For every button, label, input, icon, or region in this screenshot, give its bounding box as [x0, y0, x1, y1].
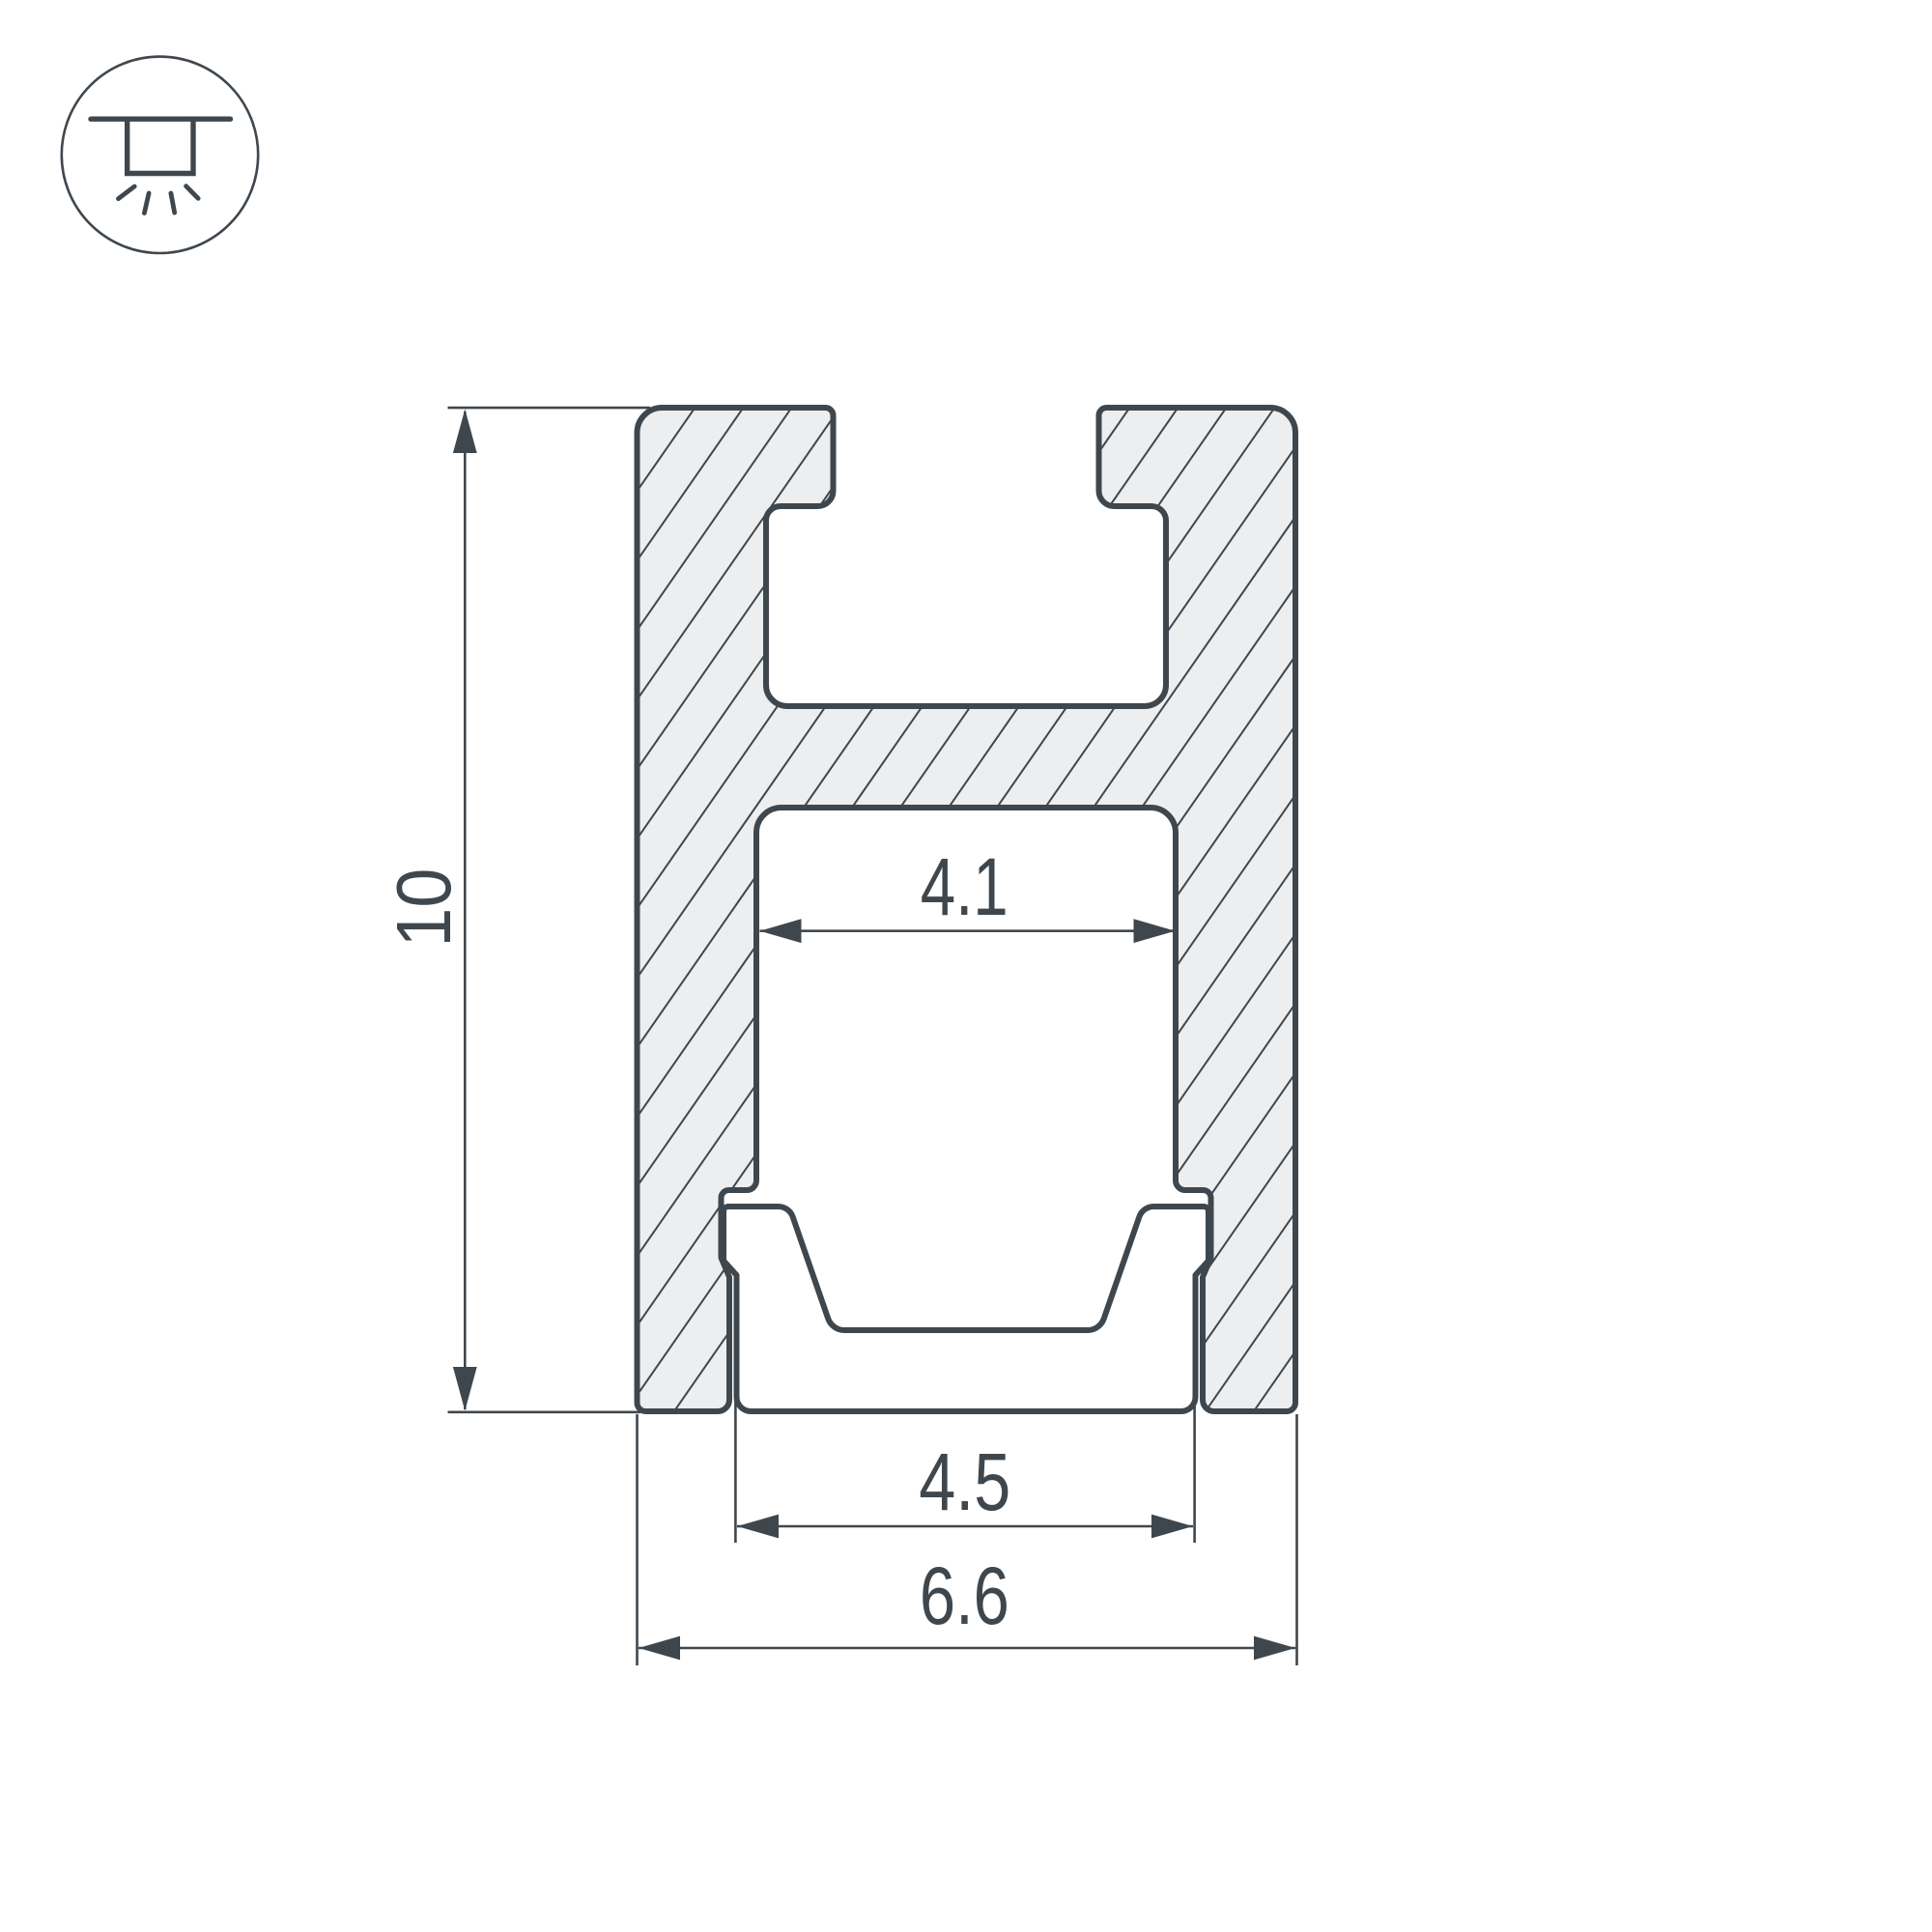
svg-text:6.6: 6.6: [920, 1550, 1009, 1641]
svg-text:10: 10: [381, 868, 467, 948]
svg-text:4.5: 4.5: [919, 1436, 1010, 1527]
svg-text:4.1: 4.1: [921, 841, 1009, 932]
